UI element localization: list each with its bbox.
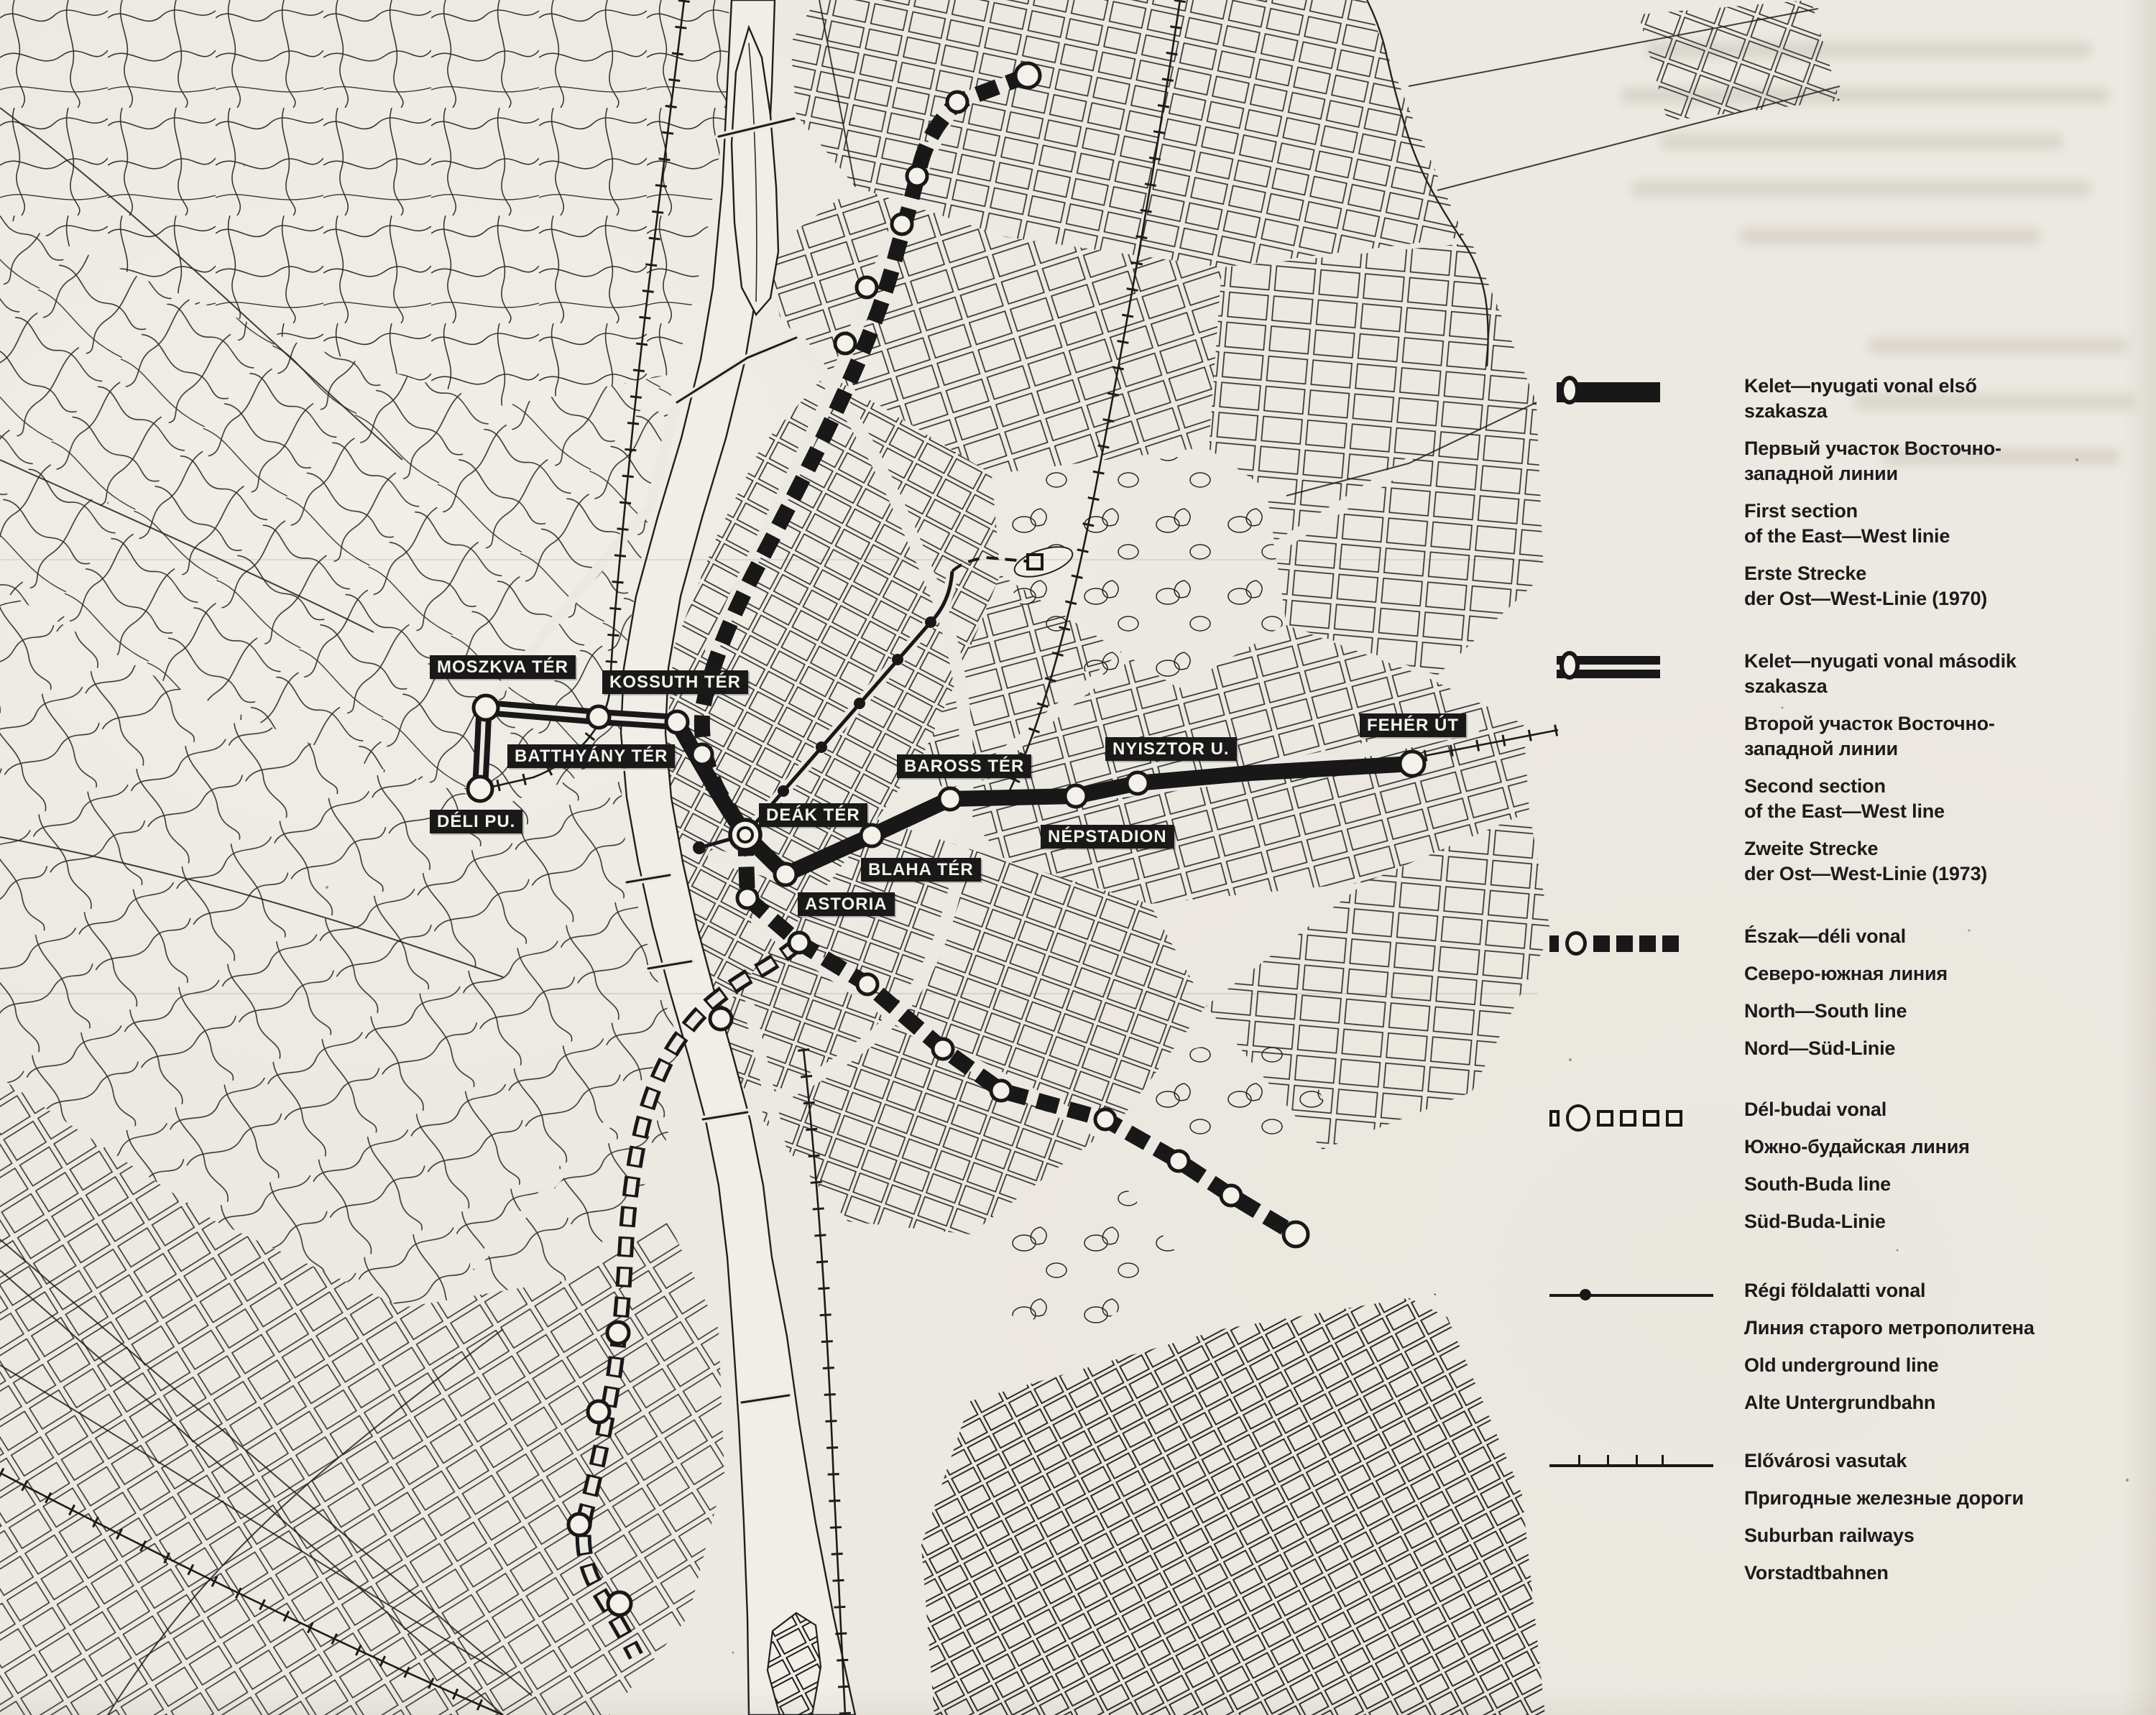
legend-text-en: Second section of the East—West line bbox=[1744, 774, 2147, 824]
station-label-nepstadion: NÉPSTADION bbox=[1041, 825, 1174, 849]
legend-symbol-suburban-railway-line-icon bbox=[1547, 1456, 1719, 1499]
legend-text-ru: Линия старого метрополитена bbox=[1744, 1316, 2147, 1341]
station-label-deli-pu: DÉLI PU. bbox=[430, 810, 522, 833]
station-label-astoria: ASTORIA bbox=[798, 892, 895, 916]
station-label-baross-ter: BAROSS TÉR bbox=[897, 754, 1031, 778]
legend-text-hu: Dél-budai vonal bbox=[1744, 1097, 2147, 1122]
legend-text-de: Erste Strecke der Ost—West-Linie (1970) bbox=[1744, 561, 2147, 611]
legend-text-en: First section of the East—West linie bbox=[1744, 499, 2147, 549]
legend-text-de: Süd-Buda-Linie bbox=[1744, 1209, 2147, 1234]
legend-text-hu: Kelet—nyugati vonal második szakasza bbox=[1744, 649, 2147, 699]
legend-text-hu: Kelet—nyugati vonal első szakasza bbox=[1744, 374, 2147, 424]
station-label-batthyany-ter: BATTHYÁNY TÉR bbox=[507, 744, 675, 768]
legend-text-ru: Пригодные железные дороги bbox=[1744, 1486, 2147, 1511]
legend-text-ru: Второй участок Восточно- западной линии bbox=[1744, 711, 2147, 762]
legend-text-en: Suburban railways bbox=[1744, 1523, 2147, 1548]
legend-text-de: Vorstadtbahnen bbox=[1744, 1561, 2147, 1586]
station-label-feher-ut: FEHÉR ÚT bbox=[1360, 713, 1466, 737]
legend-symbol-second-section-line-icon bbox=[1547, 656, 1719, 699]
csepel-island bbox=[768, 1613, 821, 1715]
station-label-kossuth-ter: KOSSUTH TÉR bbox=[602, 670, 748, 694]
deak-ter-interchange bbox=[730, 820, 760, 850]
legend-text-de: Alte Untergrundbahn bbox=[1744, 1390, 2147, 1415]
legend-symbol-old-underground-line-icon bbox=[1547, 1285, 1719, 1328]
legend-text-hu: Észak—déli vonal bbox=[1744, 924, 2147, 949]
legend-text-de: Nord—Süd-Linie bbox=[1744, 1036, 2147, 1061]
legend-text-ru: Первый участок Восточно- западной линии bbox=[1744, 436, 2147, 486]
legend-text-de: Zweite Strecke der Ost—West-Linie (1973) bbox=[1744, 836, 2147, 887]
legend: Kelet—nyugati vonal első szakasza Первый… bbox=[1547, 0, 2155, 1715]
station-label-deak-ter: DEÁK TÉR bbox=[759, 803, 867, 827]
legend-text-ru: Северо-южная линия bbox=[1744, 961, 2147, 986]
legend-text-en: South-Buda line bbox=[1744, 1172, 2147, 1197]
scanned-metro-map-page: MOSZKVA TÉR KOSSUTH TÉR BATTHYÁNY TÉR DÉ… bbox=[0, 0, 2156, 1715]
legend-symbol-south-buda-line-icon bbox=[1547, 1104, 1719, 1147]
legend-text-hu: Elővárosi vasutak bbox=[1744, 1448, 2147, 1474]
legend-text-hu: Régi földalatti vonal bbox=[1744, 1278, 2147, 1303]
legend-text-en: Old underground line bbox=[1744, 1353, 2147, 1378]
legend-symbol-first-section-line-icon bbox=[1547, 381, 1719, 424]
legend-text-en: North—South line bbox=[1744, 999, 2147, 1024]
legend-symbol-north-south-line-icon bbox=[1547, 931, 1719, 974]
station-label-nyisztor-u: NYISZTOR U. bbox=[1105, 737, 1237, 761]
legend-text-ru: Южно-будайская линия bbox=[1744, 1134, 2147, 1160]
station-label-blaha-ter: BLAHA TÉR bbox=[861, 858, 981, 882]
station-label-moszkva-ter: MOSZKVA TÉR bbox=[430, 655, 576, 679]
